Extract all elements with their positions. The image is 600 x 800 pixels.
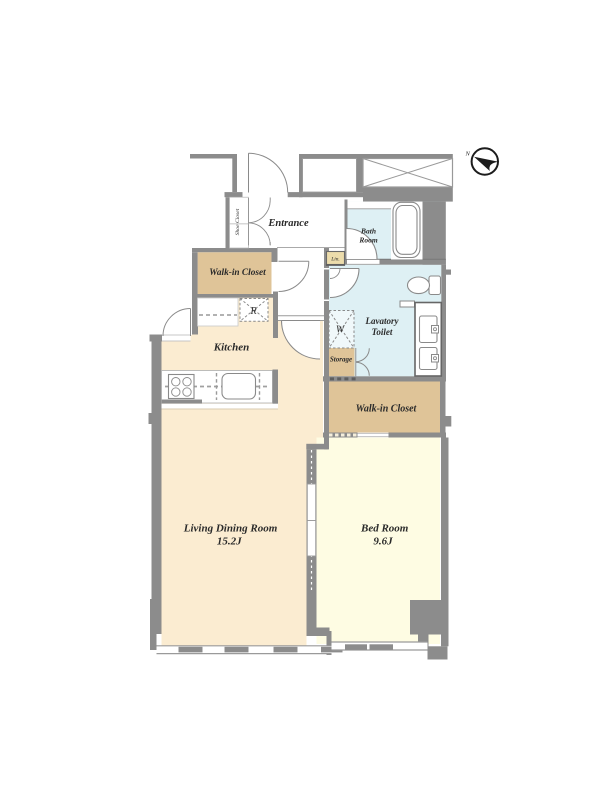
svg-text:Walk-in Closet: Walk-in Closet bbox=[209, 268, 266, 278]
svg-text:Lin.: Lin. bbox=[330, 257, 340, 263]
svg-text:Entrance: Entrance bbox=[267, 218, 309, 229]
svg-text:Living Dining Room: Living Dining Room bbox=[183, 523, 278, 535]
svg-text:Bath: Bath bbox=[360, 227, 376, 236]
svg-text:Kitchen: Kitchen bbox=[213, 342, 249, 354]
svg-text:9.6J: 9.6J bbox=[373, 536, 393, 548]
svg-text:Shoe Closet: Shoe Closet bbox=[235, 208, 241, 235]
svg-text:R: R bbox=[249, 306, 256, 317]
svg-text:Toilet: Toilet bbox=[372, 327, 393, 337]
svg-text:15.2J: 15.2J bbox=[217, 536, 242, 548]
svg-text:Storage: Storage bbox=[330, 356, 352, 364]
svg-text:Bed Room: Bed Room bbox=[360, 523, 409, 535]
svg-text:Room: Room bbox=[358, 236, 378, 245]
svg-text:N: N bbox=[465, 151, 471, 158]
svg-text:Walk-in Closet: Walk-in Closet bbox=[356, 404, 418, 415]
svg-text:Lavatory: Lavatory bbox=[365, 316, 400, 326]
